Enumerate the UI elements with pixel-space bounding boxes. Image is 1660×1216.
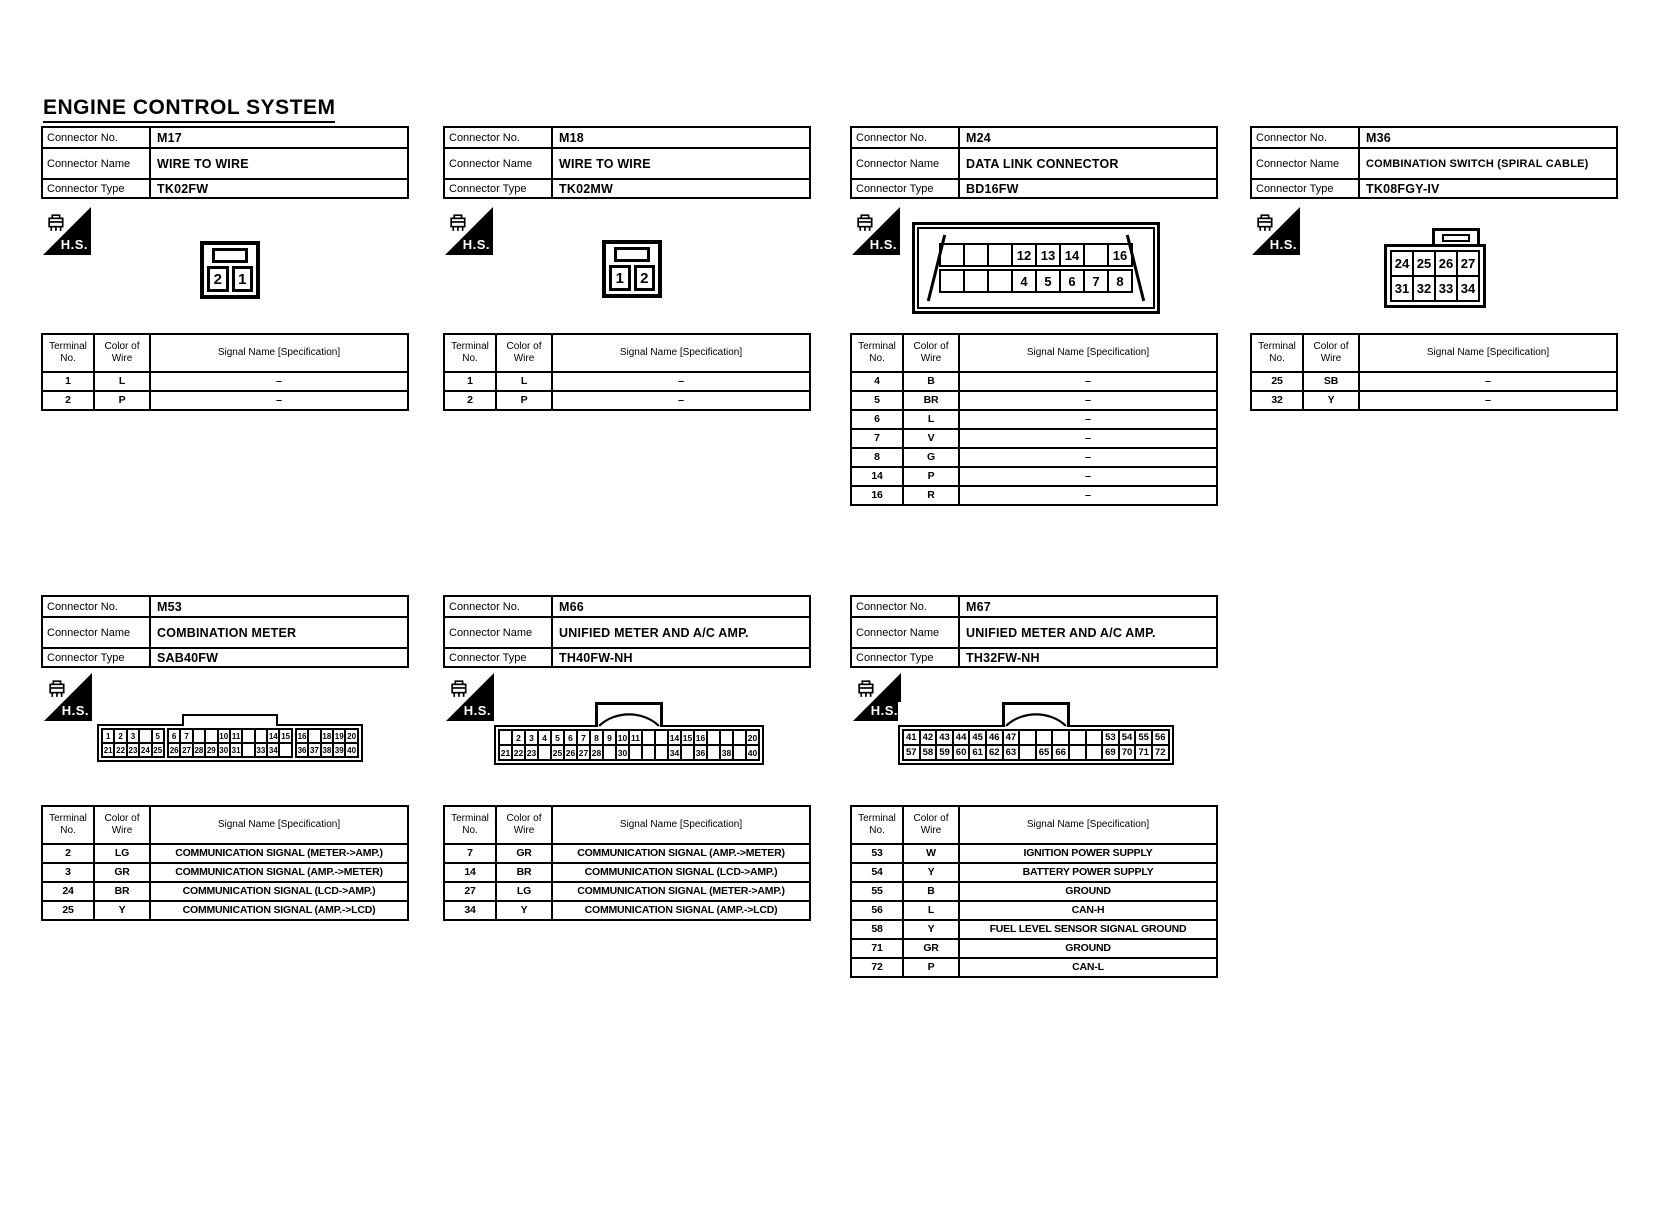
hs-label: H.S. — [871, 703, 898, 718]
connector-outline: 4142434445464753545556575859606162636566… — [898, 725, 1174, 765]
pin-diagram-m17: 2 1 — [200, 241, 260, 299]
info-row: Connector TypeTK08FGY-IV — [1252, 178, 1616, 197]
pin-diagram-m67: 4142434445464753545556575859606162636566… — [898, 702, 1174, 765]
wiring-diagram-page: { "page": {"title": "ENGINE CONTROL SYST… — [0, 0, 1660, 1216]
header-terminal-no: Terminal No. — [445, 335, 497, 371]
pin-grid-m24: 1213141645678 — [939, 243, 1133, 293]
signal-name: – — [151, 373, 407, 390]
header-signal-name: Signal Name [Specification] — [151, 335, 407, 371]
connector-no-value: M66 — [553, 597, 809, 616]
page-title: ENGINE CONTROL SYSTEM — [43, 96, 335, 123]
pin-row: 24252627 — [1390, 250, 1480, 277]
info-label-connector-type: Connector Type — [1252, 180, 1360, 197]
connector-icon — [855, 676, 880, 701]
connector-no-value: M67 — [960, 597, 1216, 616]
terminal-table-body: 4B–5BR–6L–7V–8G–14P–16R– — [852, 371, 1216, 504]
signal-name: – — [960, 373, 1216, 390]
terminal-no: 25 — [43, 902, 95, 919]
wire-color: LG — [497, 883, 553, 900]
wire-color: P — [497, 392, 553, 409]
connector-icon — [46, 676, 71, 701]
terminal-table-m18: Terminal No. Color of Wire Signal Name [… — [443, 333, 811, 411]
terminal-no: 2 — [445, 392, 497, 409]
terminal-no: 54 — [852, 864, 904, 881]
terminal-table-m53: Terminal No. Color of Wire Signal Name [… — [41, 805, 409, 921]
terminal-row: 1L– — [445, 371, 809, 390]
wire-color: L — [904, 411, 960, 428]
info-label-connector-type: Connector Type — [43, 180, 151, 197]
header-terminal-no: Terminal No. — [43, 807, 95, 843]
signal-name: – — [960, 468, 1216, 485]
pin-cell-14: 14 — [1059, 243, 1085, 267]
signal-name: COMMUNICATION SIGNAL (AMP.->METER) — [553, 845, 809, 862]
hs-label: H.S. — [61, 237, 88, 252]
pin-diagram-m53: 1235671011141516181920212223242526272829… — [97, 714, 363, 762]
connector-icon — [854, 210, 879, 235]
hs-icon: H.S. — [44, 673, 92, 721]
wire-color: BR — [904, 392, 960, 409]
info-label-connector-no: Connector No. — [852, 597, 960, 616]
pin-cell: 2 — [207, 266, 229, 292]
signal-name: CAN-H — [960, 902, 1216, 919]
hs-icon: H.S. — [852, 207, 900, 255]
connector-outline: 2425262731323334 — [1384, 244, 1486, 308]
wire-color: R — [904, 487, 960, 504]
info-label-connector-type: Connector Type — [445, 180, 553, 197]
pin-cell-40: 40 — [344, 742, 358, 758]
pin-cell: 1 — [232, 266, 254, 292]
wire-color: Y — [904, 921, 960, 938]
wire-color: Y — [904, 864, 960, 881]
terminal-no: 34 — [445, 902, 497, 919]
info-row: Connector No.M18 — [445, 128, 809, 147]
wire-color: LG — [95, 845, 151, 862]
connector-outline: 1235671011141516181920212223242526272829… — [97, 724, 363, 762]
wire-color: L — [95, 373, 151, 390]
connector-outline: 1213141645678 — [917, 227, 1155, 309]
info-row: Connector TypeTK02MW — [445, 178, 809, 197]
header-color-of-wire: Color of Wire — [497, 335, 553, 371]
hs-label: H.S. — [464, 703, 491, 718]
terminal-table-header: Terminal No. Color of Wire Signal Name [… — [445, 807, 809, 843]
terminal-table-body: 25SB–32Y– — [1252, 371, 1616, 409]
signal-name: COMMUNICATION SIGNAL (LCD->AMP.) — [553, 864, 809, 881]
info-row: Connector NameWIRE TO WIRE — [43, 147, 407, 178]
terminal-no: 55 — [852, 883, 904, 900]
terminal-table-body: 2LGCOMMUNICATION SIGNAL (METER->AMP.)3GR… — [43, 843, 407, 919]
info-row: Connector NameCOMBINATION SWITCH (SPIRAL… — [1252, 147, 1616, 178]
terminal-row: 14P– — [852, 466, 1216, 485]
terminal-table-m67: Terminal No. Color of Wire Signal Name [… — [850, 805, 1218, 978]
connector-name-value: WIRE TO WIRE — [553, 149, 809, 178]
terminal-no: 27 — [445, 883, 497, 900]
connector-outline: 2345678910111415162021222325262728303436… — [494, 725, 764, 765]
terminal-no: 2 — [43, 845, 95, 862]
info-table-m66: Connector No.M66 Connector NameUNIFIED M… — [443, 595, 811, 668]
pin-cell-34: 34 — [1456, 275, 1480, 302]
header-terminal-no: Terminal No. — [445, 807, 497, 843]
connector-no-value: M17 — [151, 128, 407, 147]
pin-cell-27: 27 — [1456, 250, 1480, 277]
terminal-table-header: Terminal No. Color of Wire Signal Name [… — [1252, 335, 1616, 371]
pin-row: 12131416 — [939, 243, 1133, 267]
info-row: Connector TypeTH32FW-NH — [852, 647, 1216, 666]
terminal-row: 8G– — [852, 447, 1216, 466]
pin-cell-25: 25 — [151, 742, 165, 758]
info-label-connector-name: Connector Name — [445, 149, 553, 178]
terminal-row: 16R– — [852, 485, 1216, 504]
info-table-m24: Connector No.M24 Connector NameDATA LINK… — [850, 126, 1218, 199]
terminal-no: 3 — [43, 864, 95, 881]
header-color-of-wire: Color of Wire — [1304, 335, 1360, 371]
signal-name: – — [553, 392, 809, 409]
terminal-row: 25YCOMMUNICATION SIGNAL (AMP.->LCD) — [43, 900, 407, 919]
connector-name-value: DATA LINK CONNECTOR — [960, 149, 1216, 178]
terminal-table-m17: Terminal No. Color of Wire Signal Name [… — [41, 333, 409, 411]
terminal-row: 2LGCOMMUNICATION SIGNAL (METER->AMP.) — [43, 843, 407, 862]
terminal-row: 2P– — [43, 390, 407, 409]
info-row: Connector NameUNIFIED METER AND A/C AMP. — [852, 616, 1216, 647]
hs-icon: H.S. — [1252, 207, 1300, 255]
info-row: Connector No.M67 — [852, 597, 1216, 616]
terminal-table-body: 1L–2P– — [43, 371, 407, 409]
connector-tab — [1002, 702, 1070, 727]
pin-cell-blank — [987, 243, 1013, 267]
signal-name: COMMUNICATION SIGNAL (LCD->AMP.) — [151, 883, 407, 900]
terminal-no: 71 — [852, 940, 904, 957]
pin-row: 45678 — [939, 269, 1133, 293]
header-color-of-wire: Color of Wire — [904, 807, 960, 843]
info-label-connector-name: Connector Name — [43, 618, 151, 647]
terminal-row: 6L– — [852, 409, 1216, 428]
pin-row: 57585960616263656669707172 — [902, 744, 1170, 761]
hs-label: H.S. — [62, 703, 89, 718]
connector-name-value: COMBINATION METER — [151, 618, 407, 647]
tab-curve — [598, 705, 660, 727]
signal-name: GROUND — [960, 883, 1216, 900]
pin-cell-blank — [963, 269, 989, 293]
info-label-connector-no: Connector No. — [852, 128, 960, 147]
terminal-row: 71GRGROUND — [852, 938, 1216, 957]
terminal-row: 7V– — [852, 428, 1216, 447]
connector-tab — [595, 702, 663, 727]
terminal-no: 24 — [43, 883, 95, 900]
pin-cell-5: 5 — [1035, 269, 1061, 293]
terminal-row: 58YFUEL LEVEL SENSOR SIGNAL GROUND — [852, 919, 1216, 938]
pin-grid-m36: 2425262731323334 — [1390, 250, 1480, 302]
pin-cell-blank — [963, 243, 989, 267]
terminal-row: 4B– — [852, 371, 1216, 390]
info-label-connector-no: Connector No. — [445, 128, 553, 147]
wire-color: P — [904, 468, 960, 485]
hs-label: H.S. — [870, 237, 897, 252]
info-row: Connector TypeBD16FW — [852, 178, 1216, 197]
pin-diagram-m66: 2345678910111415162021222325262728303436… — [494, 702, 764, 765]
header-signal-name: Signal Name [Specification] — [553, 335, 809, 371]
signal-name: COMMUNICATION SIGNAL (METER->AMP.) — [553, 883, 809, 900]
wire-color: Y — [1304, 392, 1360, 409]
pin-diagram-m18: 1 2 — [602, 240, 662, 298]
terminal-no: 7 — [852, 430, 904, 447]
info-row: Connector No.M53 — [43, 597, 407, 616]
wire-color: W — [904, 845, 960, 862]
info-label-connector-type: Connector Type — [43, 649, 151, 666]
pin-cell-7: 7 — [1083, 269, 1109, 293]
terminal-no: 6 — [852, 411, 904, 428]
pin-diagram-m24: 1213141645678 — [912, 222, 1160, 314]
connector-name-value: UNIFIED METER AND A/C AMP. — [553, 618, 809, 647]
connector-tab — [182, 714, 278, 726]
terminal-row: 27LGCOMMUNICATION SIGNAL (METER->AMP.) — [445, 881, 809, 900]
wire-color: P — [904, 959, 960, 976]
connector-name-value: COMBINATION SWITCH (SPIRAL CABLE) — [1360, 149, 1616, 178]
terminal-row: 32Y– — [1252, 390, 1616, 409]
terminal-no: 32 — [1252, 392, 1304, 409]
terminal-table-header: Terminal No. Color of Wire Signal Name [… — [43, 335, 407, 371]
terminal-no: 4 — [852, 373, 904, 390]
connector-no-value: M24 — [960, 128, 1216, 147]
info-label-connector-name: Connector Name — [852, 618, 960, 647]
pin-cell-13: 13 — [1035, 243, 1061, 267]
info-label-connector-name: Connector Name — [43, 149, 151, 178]
info-row: Connector TypeTK02FW — [43, 178, 407, 197]
info-label-connector-type: Connector Type — [445, 649, 553, 666]
header-color-of-wire: Color of Wire — [95, 335, 151, 371]
wire-color: G — [904, 449, 960, 466]
terminal-row: 24BRCOMMUNICATION SIGNAL (LCD->AMP.) — [43, 881, 407, 900]
info-row: Connector NameCOMBINATION METER — [43, 616, 407, 647]
pin-row: 212223242526272829303133343637383940 — [101, 742, 359, 758]
terminal-no: 56 — [852, 902, 904, 919]
terminal-row: 72PCAN-L — [852, 957, 1216, 976]
info-table-m18: Connector No.M18 Connector NameWIRE TO W… — [443, 126, 811, 199]
header-signal-name: Signal Name [Specification] — [151, 807, 407, 843]
wire-color: GR — [497, 845, 553, 862]
connector-icon — [447, 210, 472, 235]
connector-icon — [1254, 210, 1279, 235]
signal-name: – — [553, 373, 809, 390]
hs-icon: H.S. — [853, 673, 901, 721]
terminal-row: 5BR– — [852, 390, 1216, 409]
info-row: Connector No.M17 — [43, 128, 407, 147]
terminal-row: 3GRCOMMUNICATION SIGNAL (AMP.->METER) — [43, 862, 407, 881]
signal-name: – — [960, 487, 1216, 504]
info-row: Connector NameDATA LINK CONNECTOR — [852, 147, 1216, 178]
signal-name: – — [960, 449, 1216, 466]
header-terminal-no: Terminal No. — [1252, 335, 1304, 371]
pin-cell: 1 — [609, 265, 631, 291]
header-color-of-wire: Color of Wire — [497, 807, 553, 843]
hs-icon: H.S. — [446, 673, 494, 721]
pin-cell-40: 40 — [745, 744, 760, 761]
connector-type-value: TK02MW — [553, 180, 809, 197]
terminal-row: 1L– — [43, 371, 407, 390]
header-color-of-wire: Color of Wire — [95, 807, 151, 843]
connector-type-value: BD16FW — [960, 180, 1216, 197]
pin-cell-6: 6 — [1059, 269, 1085, 293]
terminal-no: 5 — [852, 392, 904, 409]
signal-name: BATTERY POWER SUPPLY — [960, 864, 1216, 881]
info-label-connector-no: Connector No. — [43, 597, 151, 616]
terminal-no: 25 — [1252, 373, 1304, 390]
header-terminal-no: Terminal No. — [852, 335, 904, 371]
signal-name: IGNITION POWER SUPPLY — [960, 845, 1216, 862]
wire-color: SB — [1304, 373, 1360, 390]
terminal-row: 54YBATTERY POWER SUPPLY — [852, 862, 1216, 881]
info-row: Connector No.M36 — [1252, 128, 1616, 147]
info-label-connector-type: Connector Type — [852, 649, 960, 666]
terminal-row: 34YCOMMUNICATION SIGNAL (AMP.->LCD) — [445, 900, 809, 919]
pin-cell-72: 72 — [1151, 744, 1170, 761]
connector-type-value: TK02FW — [151, 180, 407, 197]
info-label-connector-no: Connector No. — [1252, 128, 1360, 147]
header-terminal-no: Terminal No. — [852, 807, 904, 843]
terminal-table-m24: Terminal No. Color of Wire Signal Name [… — [850, 333, 1218, 506]
connector-no-value: M18 — [553, 128, 809, 147]
info-label-connector-name: Connector Name — [852, 149, 960, 178]
terminal-no: 16 — [852, 487, 904, 504]
info-row: Connector TypeSAB40FW — [43, 647, 407, 666]
signal-name: COMMUNICATION SIGNAL (METER->AMP.) — [151, 845, 407, 862]
connector-tab — [1432, 228, 1480, 244]
pin-grid-m67: 4142434445464753545556575859606162636566… — [902, 729, 1170, 761]
terminal-no: 1 — [445, 373, 497, 390]
wire-color: B — [904, 883, 960, 900]
signal-name: FUEL LEVEL SENSOR SIGNAL GROUND — [960, 921, 1216, 938]
info-label-connector-name: Connector Name — [445, 618, 553, 647]
connector-slot — [212, 248, 248, 263]
header-signal-name: Signal Name [Specification] — [553, 807, 809, 843]
hs-icon: H.S. — [43, 207, 91, 255]
terminal-table-header: Terminal No. Color of Wire Signal Name [… — [852, 807, 1216, 843]
info-row: Connector NameWIRE TO WIRE — [445, 147, 809, 178]
signal-name: GROUND — [960, 940, 1216, 957]
pin-cell-25: 25 — [1412, 250, 1436, 277]
tab-curve — [1005, 705, 1067, 727]
wire-color: Y — [497, 902, 553, 919]
info-row: Connector TypeTH40FW-NH — [445, 647, 809, 666]
info-table-m53: Connector No.M53 Connector NameCOMBINATI… — [41, 595, 409, 668]
terminal-row: 25SB– — [1252, 371, 1616, 390]
connector-type-value: SAB40FW — [151, 649, 407, 666]
terminal-no: 53 — [852, 845, 904, 862]
terminal-table-body: 53WIGNITION POWER SUPPLY54YBATTERY POWER… — [852, 843, 1216, 976]
signal-name: – — [960, 411, 1216, 428]
signal-name: – — [960, 430, 1216, 447]
connector-slot — [1442, 234, 1470, 242]
terminal-no: 1 — [43, 373, 95, 390]
connector-type-value: TH40FW-NH — [553, 649, 809, 666]
terminal-row: 53WIGNITION POWER SUPPLY — [852, 843, 1216, 862]
info-label-connector-no: Connector No. — [43, 128, 151, 147]
pin-cell-8: 8 — [1107, 269, 1133, 293]
pin-cell-26: 26 — [1434, 250, 1458, 277]
signal-name: – — [960, 392, 1216, 409]
wire-color: BR — [497, 864, 553, 881]
terminal-table-body: 1L–2P– — [445, 371, 809, 409]
signal-name: COMMUNICATION SIGNAL (AMP.->LCD) — [553, 902, 809, 919]
terminal-table-header: Terminal No. Color of Wire Signal Name [… — [445, 335, 809, 371]
wire-color: L — [497, 373, 553, 390]
hs-icon: H.S. — [445, 207, 493, 255]
pin-cell-4: 4 — [1011, 269, 1037, 293]
terminal-row: 55BGROUND — [852, 881, 1216, 900]
pin-cell-31: 31 — [1390, 275, 1414, 302]
header-signal-name: Signal Name [Specification] — [1360, 335, 1616, 371]
info-label-connector-name: Connector Name — [1252, 149, 1360, 178]
info-label-connector-no: Connector No. — [445, 597, 553, 616]
connector-type-value: TK08FGY-IV — [1360, 180, 1616, 197]
wire-color: BR — [95, 883, 151, 900]
connector-slot — [614, 247, 650, 262]
terminal-row: 2P– — [445, 390, 809, 409]
terminal-table-header: Terminal No. Color of Wire Signal Name [… — [43, 807, 407, 843]
terminal-no: 14 — [852, 468, 904, 485]
pin-cell: 2 — [634, 265, 656, 291]
signal-name: COMMUNICATION SIGNAL (AMP.->LCD) — [151, 902, 407, 919]
terminal-row: 56LCAN-H — [852, 900, 1216, 919]
pin-grid-m53: 1235671011141516181920212223242526272829… — [101, 728, 359, 758]
info-table-m17: Connector No.M17 Connector NameWIRE TO W… — [41, 126, 409, 199]
header-signal-name: Signal Name [Specification] — [960, 807, 1216, 843]
info-label-connector-type: Connector Type — [852, 180, 960, 197]
connector-name-value: UNIFIED METER AND A/C AMP. — [960, 618, 1216, 647]
pin-cell-blank — [1083, 243, 1109, 267]
wire-color: Y — [95, 902, 151, 919]
wire-color: L — [904, 902, 960, 919]
header-color-of-wire: Color of Wire — [904, 335, 960, 371]
info-row: Connector NameUNIFIED METER AND A/C AMP. — [445, 616, 809, 647]
hs-label: H.S. — [463, 237, 490, 252]
wire-color: GR — [95, 864, 151, 881]
pin-row: 31323334 — [1390, 275, 1480, 302]
terminal-table-header: Terminal No. Color of Wire Signal Name [… — [852, 335, 1216, 371]
pin-cell-32: 32 — [1412, 275, 1436, 302]
signal-name: CAN-L — [960, 959, 1216, 976]
terminal-no: 8 — [852, 449, 904, 466]
connector-type-value: TH32FW-NH — [960, 649, 1216, 666]
info-table-m36: Connector No.M36 Connector NameCOMBINATI… — [1250, 126, 1618, 199]
signal-name: – — [1360, 392, 1616, 409]
wire-color: V — [904, 430, 960, 447]
header-terminal-no: Terminal No. — [43, 335, 95, 371]
connector-no-value: M53 — [151, 597, 407, 616]
connector-name-value: WIRE TO WIRE — [151, 149, 407, 178]
terminal-no: 14 — [445, 864, 497, 881]
pin-diagram-m36: 2425262731323334 — [1384, 228, 1486, 308]
pin-cell-blank — [987, 269, 1013, 293]
connector-icon — [448, 676, 473, 701]
pin-cell-24: 24 — [1390, 250, 1414, 277]
wire-color: B — [904, 373, 960, 390]
terminal-row: 14BRCOMMUNICATION SIGNAL (LCD->AMP.) — [445, 862, 809, 881]
terminal-no: 7 — [445, 845, 497, 862]
pin-cell-12: 12 — [1011, 243, 1037, 267]
hs-label: H.S. — [1270, 237, 1297, 252]
header-signal-name: Signal Name [Specification] — [960, 335, 1216, 371]
terminal-table-body: 7GRCOMMUNICATION SIGNAL (AMP.->METER)14B… — [445, 843, 809, 919]
signal-name: – — [1360, 373, 1616, 390]
pin-cell-blank — [278, 742, 292, 758]
pin-grid-m66: 2345678910111415162021222325262728303436… — [498, 729, 760, 761]
wire-color: P — [95, 392, 151, 409]
wire-color: GR — [904, 940, 960, 957]
connector-no-value: M36 — [1360, 128, 1616, 147]
terminal-table-m36: Terminal No. Color of Wire Signal Name [… — [1250, 333, 1618, 411]
signal-name: COMMUNICATION SIGNAL (AMP.->METER) — [151, 864, 407, 881]
info-row: Connector No.M66 — [445, 597, 809, 616]
signal-name: – — [151, 392, 407, 409]
